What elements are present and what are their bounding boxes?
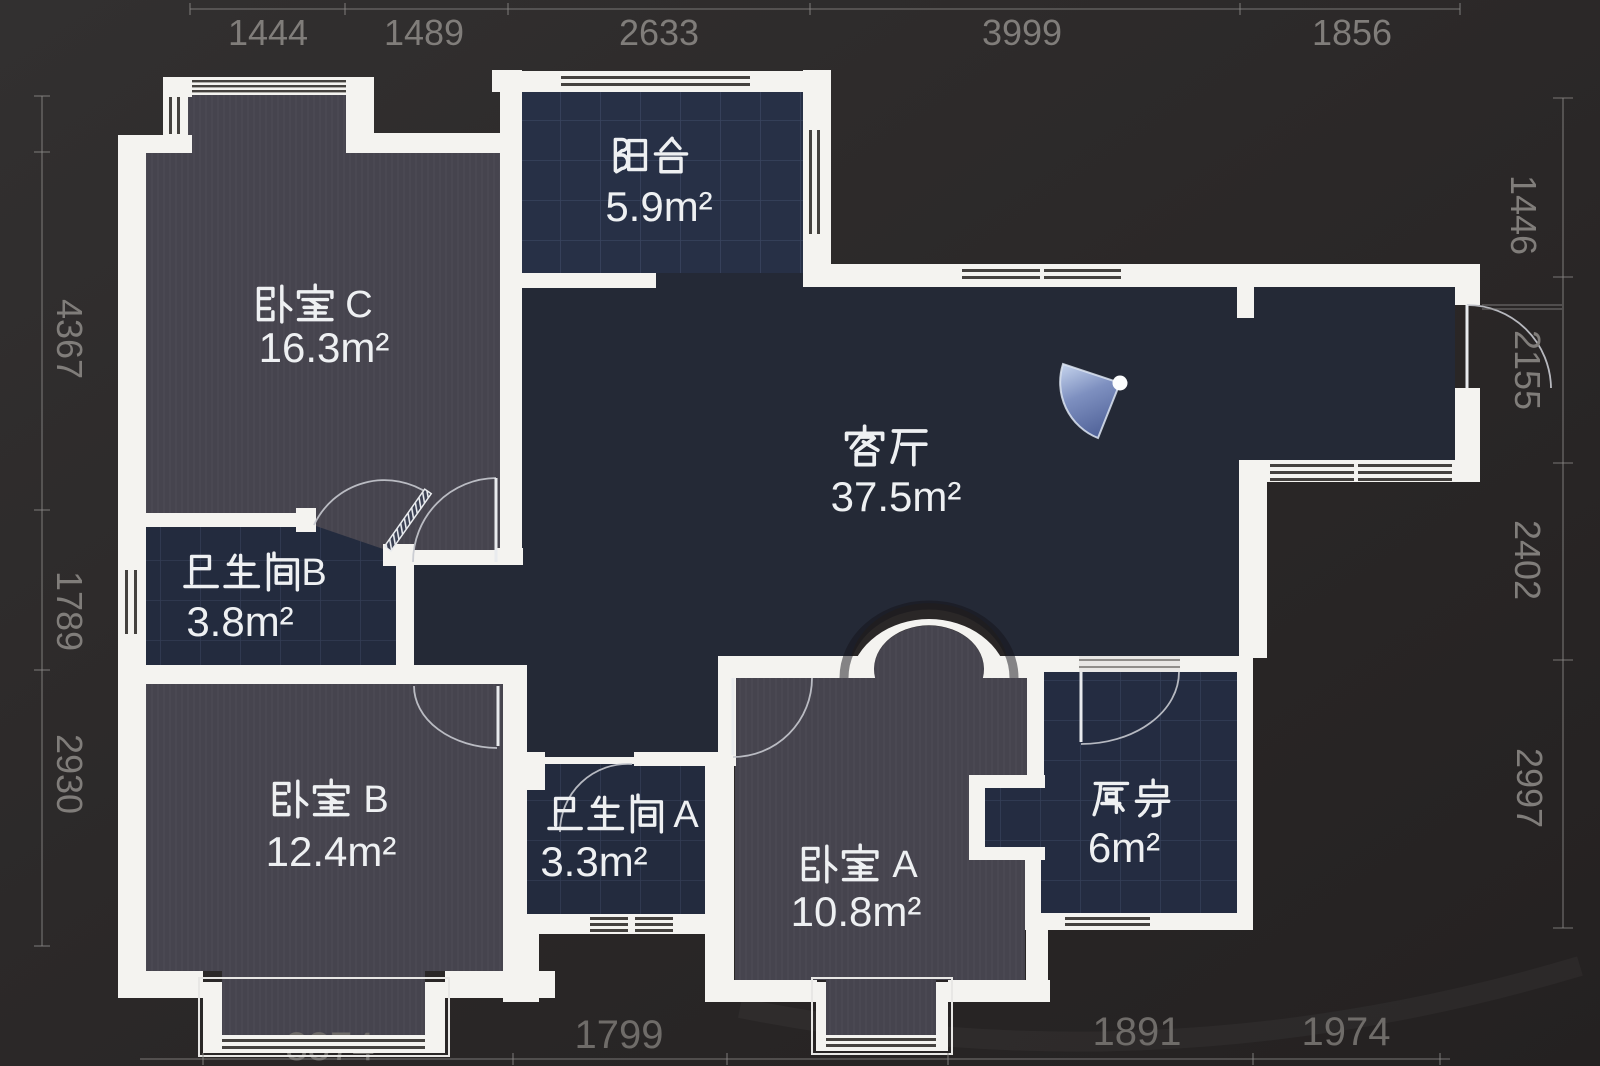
svg-text:6m²: 6m²	[1088, 824, 1160, 871]
svg-text:2155: 2155	[1507, 330, 1548, 410]
svg-text:2402: 2402	[1507, 520, 1548, 600]
svg-text:37.5m²: 37.5m²	[831, 473, 962, 520]
svg-text:1489: 1489	[384, 12, 464, 53]
svg-text:1444: 1444	[228, 12, 308, 53]
svg-text:2633: 2633	[619, 12, 699, 53]
svg-text:3999: 3999	[982, 12, 1062, 53]
svg-text:3.8m²: 3.8m²	[186, 598, 293, 645]
svg-text:4367: 4367	[49, 299, 90, 379]
svg-text:16.3m²: 16.3m²	[259, 324, 390, 371]
svg-text:A: A	[673, 794, 699, 836]
svg-text:1789: 1789	[49, 571, 90, 651]
svg-text:C: C	[345, 284, 372, 326]
svg-text:2997: 2997	[1509, 748, 1550, 828]
svg-text:1446: 1446	[1503, 175, 1544, 255]
svg-text:1799: 1799	[575, 1013, 664, 1057]
svg-text:A: A	[892, 844, 918, 886]
svg-text:1891: 1891	[1093, 1010, 1182, 1054]
svg-text:5.9m²: 5.9m²	[605, 183, 712, 230]
svg-text:12.4m²: 12.4m²	[266, 828, 397, 875]
svg-text:B: B	[363, 779, 388, 821]
svg-text:B: B	[301, 552, 326, 594]
svg-text:2930: 2930	[49, 734, 90, 814]
svg-text:1856: 1856	[1312, 12, 1392, 53]
svg-text:3.3m²: 3.3m²	[540, 838, 647, 885]
svg-text:1974: 1974	[1302, 1010, 1391, 1054]
svg-text:10.8m²: 10.8m²	[791, 888, 922, 935]
